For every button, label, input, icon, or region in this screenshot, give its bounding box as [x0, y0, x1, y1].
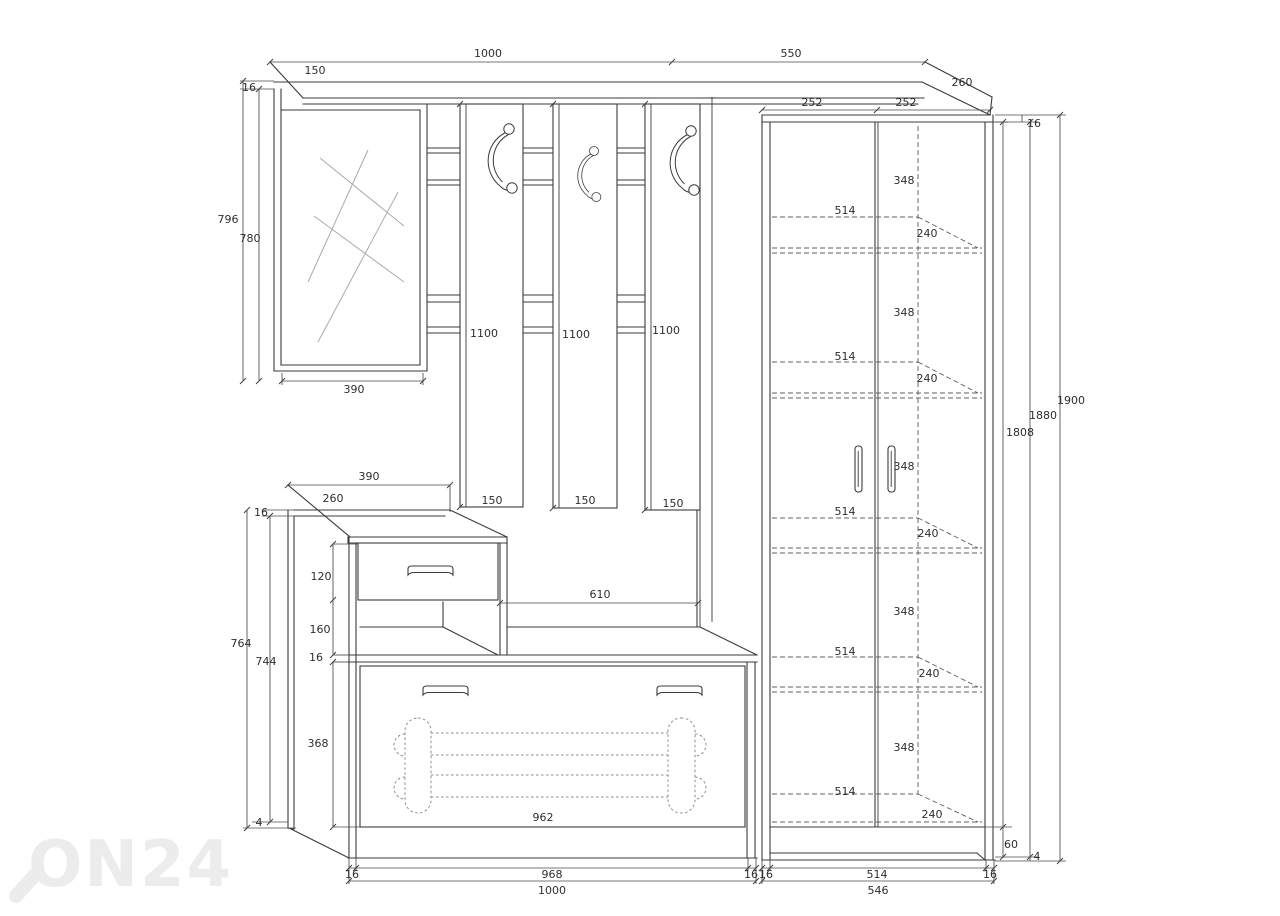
watermark-logo: ON24 — [16, 828, 233, 902]
dim-wardrobe-total-width: 546 — [868, 884, 889, 897]
dim-seat-clearance: 610 — [590, 588, 611, 601]
dim-seat-thickness: 16 — [309, 651, 323, 664]
dim-bench-top-thickness: 16 — [254, 506, 268, 519]
hook-panel-2 — [553, 104, 617, 508]
dim-mirror-inner-height: 780 — [240, 232, 261, 245]
dim-shelf2-width: 514 — [835, 350, 856, 363]
drawer-handle — [408, 566, 453, 575]
dim-top-left-thickness: 16 — [242, 81, 256, 94]
dim-flap-height: 368 — [308, 737, 329, 750]
dim-plinth-height: 60 — [1004, 838, 1018, 851]
bench-unit — [288, 485, 757, 858]
dim-shelf3-width: 514 — [835, 505, 856, 518]
dim-shelf1-depth: 240 — [917, 227, 938, 240]
shoe-rack-mechanism — [394, 718, 706, 813]
dim-door-width-1: 252 — [802, 96, 823, 109]
dim-wardrobe-total-height: 1900 — [1057, 394, 1085, 407]
dim-bench-base-left: 16 — [345, 868, 359, 881]
dim-shelf5-gap: 348 — [894, 741, 915, 754]
coat-rack — [427, 97, 712, 627]
mirror-cabinet — [274, 89, 427, 371]
dim-wardrobe-bottom-gap: 4 — [1034, 850, 1041, 863]
flap-handle-left — [423, 686, 468, 695]
dim-shelf1-width: 514 — [835, 204, 856, 217]
dim-shelf4-gap: 348 — [894, 605, 915, 618]
dim-bench-base-right: 16 — [744, 868, 758, 881]
dim-drawer-height: 120 — [311, 570, 332, 583]
dim-shelf2-gap: 348 — [894, 306, 915, 319]
dim-shelf5-width: 514 — [835, 785, 856, 798]
dim-shelf5-depth: 240 — [922, 808, 943, 821]
technical-drawing-page: 1000 550 150 260 16 796 780 390 1100 110… — [0, 0, 1280, 916]
wardrobe-handle-left — [855, 446, 862, 492]
dim-wardrobe-base-right: 16 — [983, 868, 997, 881]
dim-mirror-width: 390 — [344, 383, 365, 396]
dim-shelf2-depth: 240 — [917, 372, 938, 385]
dim-top-left-depth: 150 — [305, 64, 326, 77]
dim-door-width-2: 252 — [896, 96, 917, 109]
dim-flap-width: 962 — [533, 811, 554, 824]
hook-panel-3 — [645, 104, 700, 510]
hook-panel-1 — [460, 104, 523, 507]
dim-wardrobe-carcass-height: 1880 — [1029, 409, 1057, 422]
dim-panel3-height: 1100 — [652, 324, 680, 337]
wardrobe — [762, 115, 995, 860]
watermark-text: ON24 — [28, 828, 233, 902]
dim-panel2-height: 1100 — [562, 328, 590, 341]
furniture-dimension-drawing: 1000 550 150 260 16 796 780 390 1100 110… — [0, 0, 1280, 916]
dim-bench-base-width: 968 — [542, 868, 563, 881]
dim-panel2-width: 150 — [575, 494, 596, 507]
dim-panel1-width: 150 — [482, 494, 503, 507]
dim-wardrobe-base-width: 514 — [867, 868, 888, 881]
dim-bench-inner-height: 744 — [256, 655, 277, 668]
dim-bench-side-gap: 4 — [256, 816, 263, 829]
dim-wardrobe-base-left: 16 — [759, 868, 773, 881]
dim-top-right-depth: 260 — [952, 76, 973, 89]
dim-shelf1-gap: 348 — [894, 174, 915, 187]
dim-shelf4-depth: 240 — [919, 667, 940, 680]
dim-bench-top-depth: 260 — [323, 492, 344, 505]
dim-top-left-width: 1000 — [474, 47, 502, 60]
dim-bench-total-width: 1000 — [538, 884, 566, 897]
dim-bench-outer-height: 764 — [231, 637, 252, 650]
dim-shelf4-width: 514 — [835, 645, 856, 658]
top-boards — [270, 62, 992, 115]
dim-panel3-width: 150 — [663, 497, 684, 510]
dim-mirror-outer-height: 796 — [218, 213, 239, 226]
mirror-glass-hatch — [308, 150, 404, 342]
dim-shelf3-gap: 348 — [894, 460, 915, 473]
dim-top-right-width: 550 — [781, 47, 802, 60]
dim-bench-top-width: 390 — [359, 470, 380, 483]
dim-shelf3-depth: 240 — [918, 527, 939, 540]
wardrobe-shelves — [772, 217, 982, 822]
dim-niche-height: 160 — [310, 623, 331, 636]
flap-handle-right — [657, 686, 702, 695]
dim-panel1-height: 1100 — [470, 327, 498, 340]
